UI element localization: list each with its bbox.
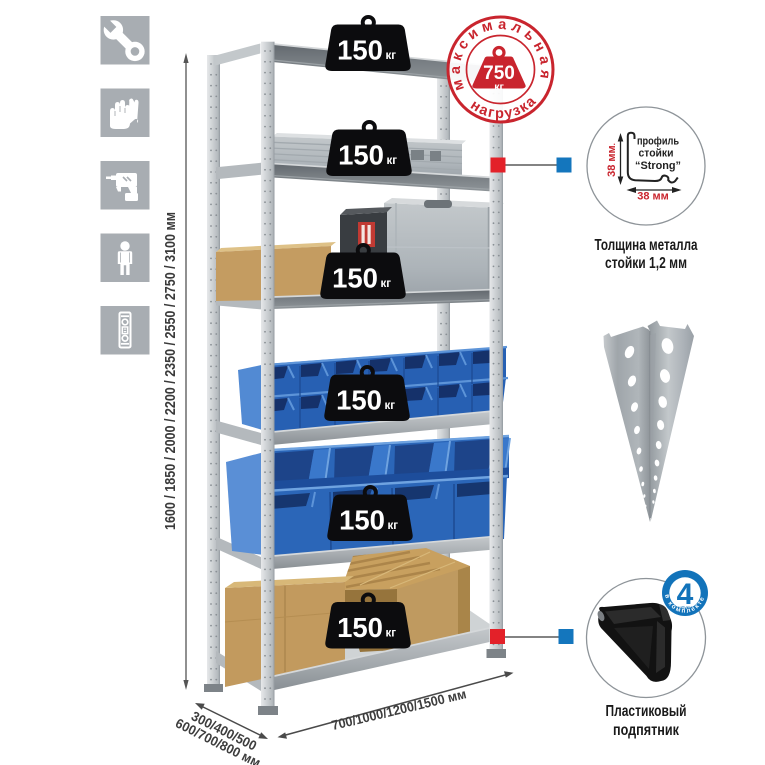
svg-text:Пластиковый: Пластиковый bbox=[606, 703, 687, 720]
svg-text:кг: кг bbox=[386, 50, 397, 62]
svg-text:38 мм: 38 мм bbox=[637, 191, 669, 203]
svg-text:38 мм.: 38 мм. bbox=[606, 143, 618, 177]
svg-text:кг: кг bbox=[387, 155, 398, 167]
svg-text:Толщина металла: Толщина металла bbox=[595, 237, 698, 254]
svg-text:стойки 1,2 мм: стойки 1,2 мм bbox=[605, 255, 687, 272]
svg-text:профиль: профиль bbox=[637, 136, 679, 148]
svg-text:кг: кг bbox=[386, 628, 397, 640]
svg-text:кг: кг bbox=[381, 278, 392, 290]
svg-text:“Strong”: “Strong” bbox=[635, 160, 681, 172]
svg-text:150: 150 bbox=[338, 140, 384, 171]
svg-text:150: 150 bbox=[332, 263, 378, 294]
svg-text:150: 150 bbox=[337, 612, 383, 643]
svg-text:150: 150 bbox=[336, 385, 382, 416]
svg-text:стойки: стойки bbox=[639, 148, 674, 160]
svg-text:1600 / 1850 / 2000 / 2200 / 23: 1600 / 1850 / 2000 / 2200 / 2350 / 2550 … bbox=[163, 212, 179, 530]
svg-text:кг: кг bbox=[385, 400, 396, 412]
svg-text:150: 150 bbox=[339, 505, 385, 536]
svg-text:подпятник: подпятник bbox=[613, 722, 680, 739]
svg-text:кг: кг bbox=[494, 81, 504, 93]
svg-text:150: 150 bbox=[337, 35, 383, 66]
svg-text:кг: кг bbox=[388, 520, 399, 532]
